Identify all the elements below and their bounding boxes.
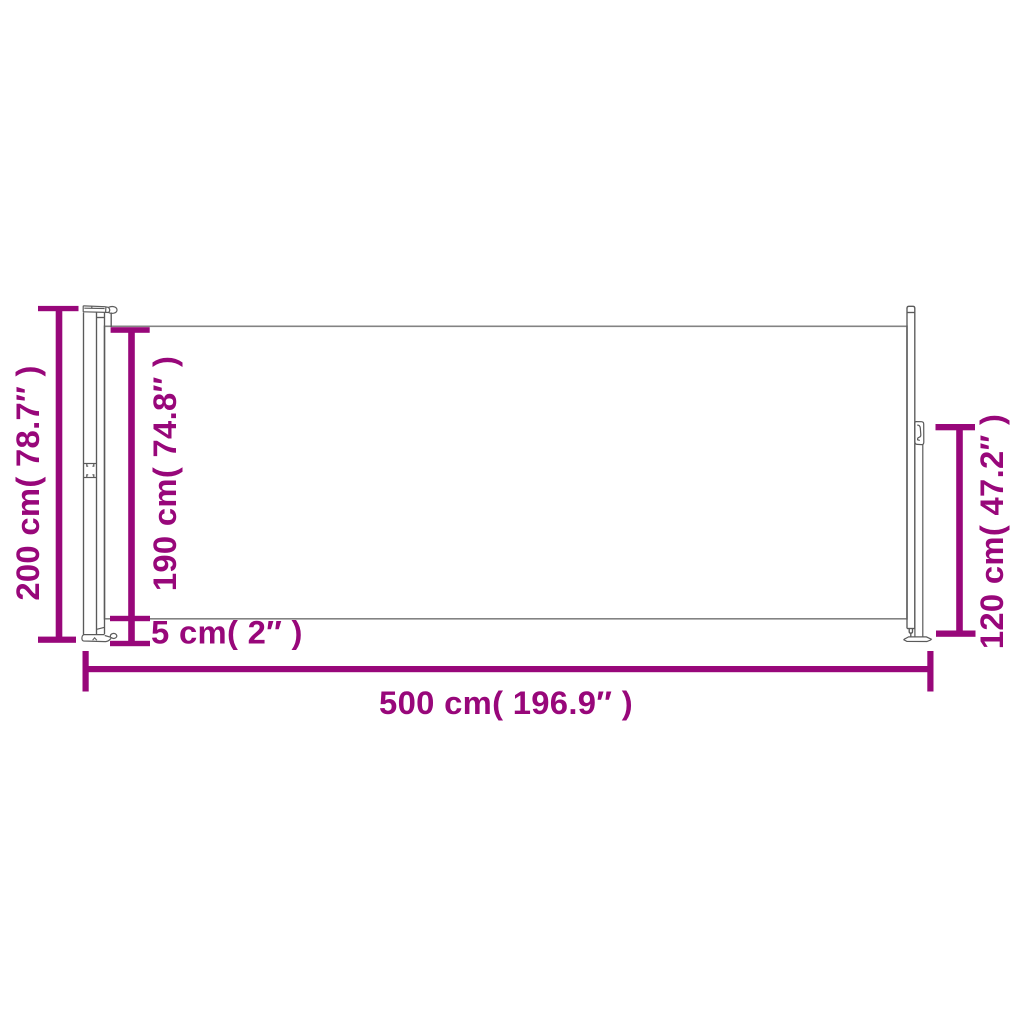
svg-text:200 cm( 78.7″ ): 200 cm( 78.7″ ) — [9, 365, 46, 600]
svg-text:5 cm( 2″ ): 5 cm( 2″ ) — [151, 614, 303, 651]
svg-text:120 cm( 47.2″ ): 120 cm( 47.2″ ) — [973, 414, 1010, 649]
svg-text:190 cm( 74.8″ ): 190 cm( 74.8″ ) — [146, 356, 183, 591]
svg-text:500 cm( 196.9″ ): 500 cm( 196.9″ ) — [379, 684, 633, 721]
